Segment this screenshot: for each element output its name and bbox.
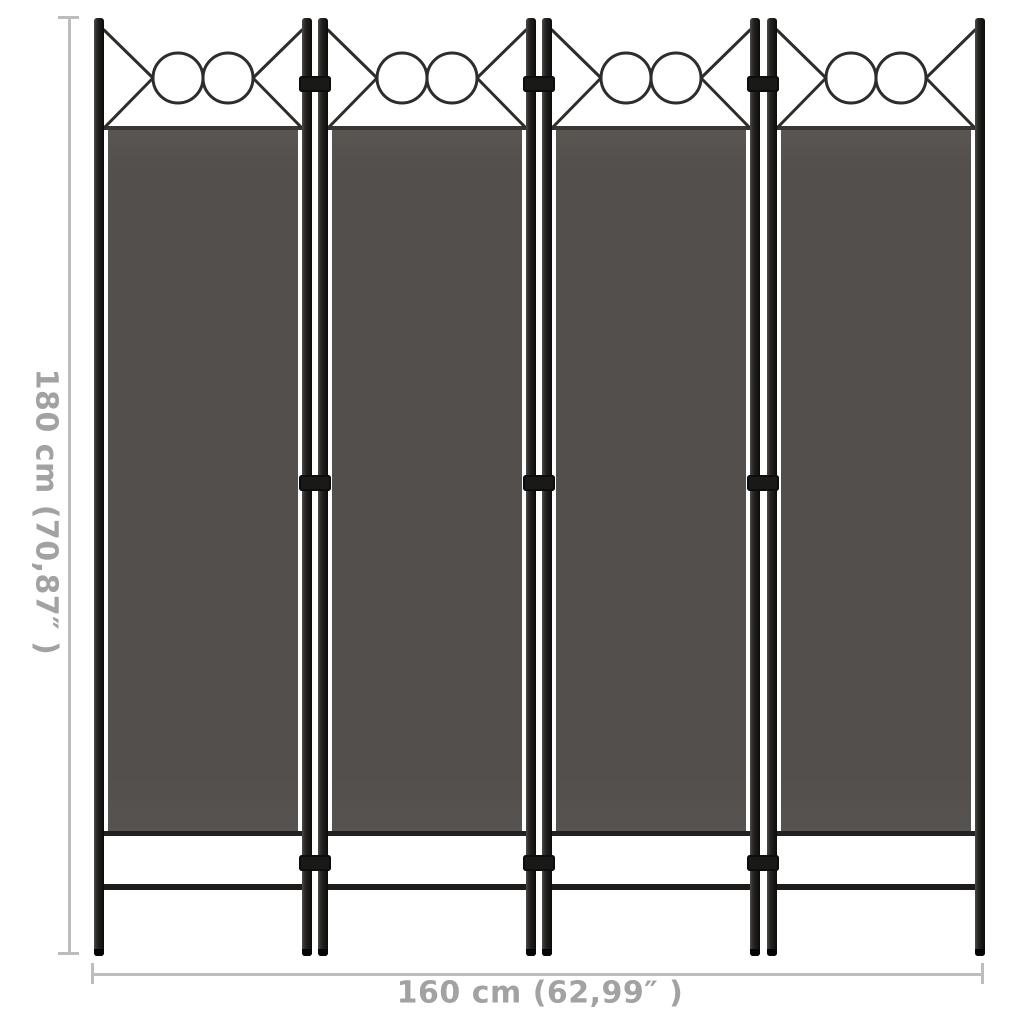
hinge <box>523 76 555 92</box>
panel-top-decoration <box>766 14 986 134</box>
panel-fabric <box>556 128 746 832</box>
decorative-diagonal <box>328 30 377 78</box>
height-dimension-tick-top <box>58 16 79 19</box>
height-dimension-line <box>68 17 71 955</box>
width-dimension-tick-left <box>91 963 94 984</box>
decorative-diagonal <box>926 30 975 78</box>
panel-bottom-rail <box>323 831 531 836</box>
decorative-diagonal <box>777 30 826 78</box>
panel-bottom-rail <box>547 831 755 836</box>
decorative-circle <box>377 53 427 103</box>
width-dimension-tick-right <box>981 963 984 984</box>
decorative-diagonal <box>552 78 601 128</box>
height-dimension-label: 180 cm (70,87″ ) <box>29 369 64 656</box>
panel-post-left <box>94 18 104 956</box>
panel-bottom-rail <box>99 831 307 836</box>
panel-cross-rail <box>99 884 307 890</box>
panel-fabric <box>108 128 298 832</box>
panel-cross-rail <box>772 884 980 890</box>
hinge <box>747 855 779 871</box>
decorative-circle <box>427 53 477 103</box>
decorative-circle <box>826 53 876 103</box>
hinge <box>747 475 779 491</box>
hinge <box>523 475 555 491</box>
width-dimension-label: 160 cm (62,99″ ) <box>397 976 684 1011</box>
decorative-diagonal <box>328 78 377 128</box>
hinge <box>299 475 331 491</box>
decorative-diagonal <box>701 30 750 78</box>
decorative-circle <box>876 53 926 103</box>
decorative-diagonal <box>777 78 826 128</box>
decorative-diagonal <box>701 78 750 128</box>
panel-fabric <box>332 128 522 832</box>
decorative-diagonal <box>477 30 526 78</box>
height-dimension-tick-bottom <box>58 952 79 955</box>
decorative-circle <box>153 53 203 103</box>
panel-cross-rail <box>547 884 755 890</box>
decorative-diagonal <box>926 78 975 128</box>
decorative-circle <box>203 53 253 103</box>
hinge <box>299 855 331 871</box>
panel-top-decoration <box>317 14 537 134</box>
panel-top-decoration <box>541 14 761 134</box>
panel-cross-rail <box>323 884 531 890</box>
decorative-circle <box>651 53 701 103</box>
panel-top-decoration <box>93 14 313 134</box>
hinge <box>299 76 331 92</box>
decorative-diagonal <box>104 30 153 78</box>
panel-post-right <box>975 18 985 956</box>
product-dimension-diagram: 180 cm (70,87″ ) 160 cm (62,99″ ) <box>0 0 1024 1024</box>
panel-bottom-rail <box>772 831 980 836</box>
decorative-diagonal <box>253 30 302 78</box>
decorative-diagonal <box>552 30 601 78</box>
decorative-diagonal <box>104 78 153 128</box>
panel-fabric <box>781 128 971 832</box>
decorative-diagonal <box>253 78 302 128</box>
hinge <box>523 855 555 871</box>
decorative-diagonal <box>477 78 526 128</box>
decorative-circle <box>601 53 651 103</box>
hinge <box>747 76 779 92</box>
